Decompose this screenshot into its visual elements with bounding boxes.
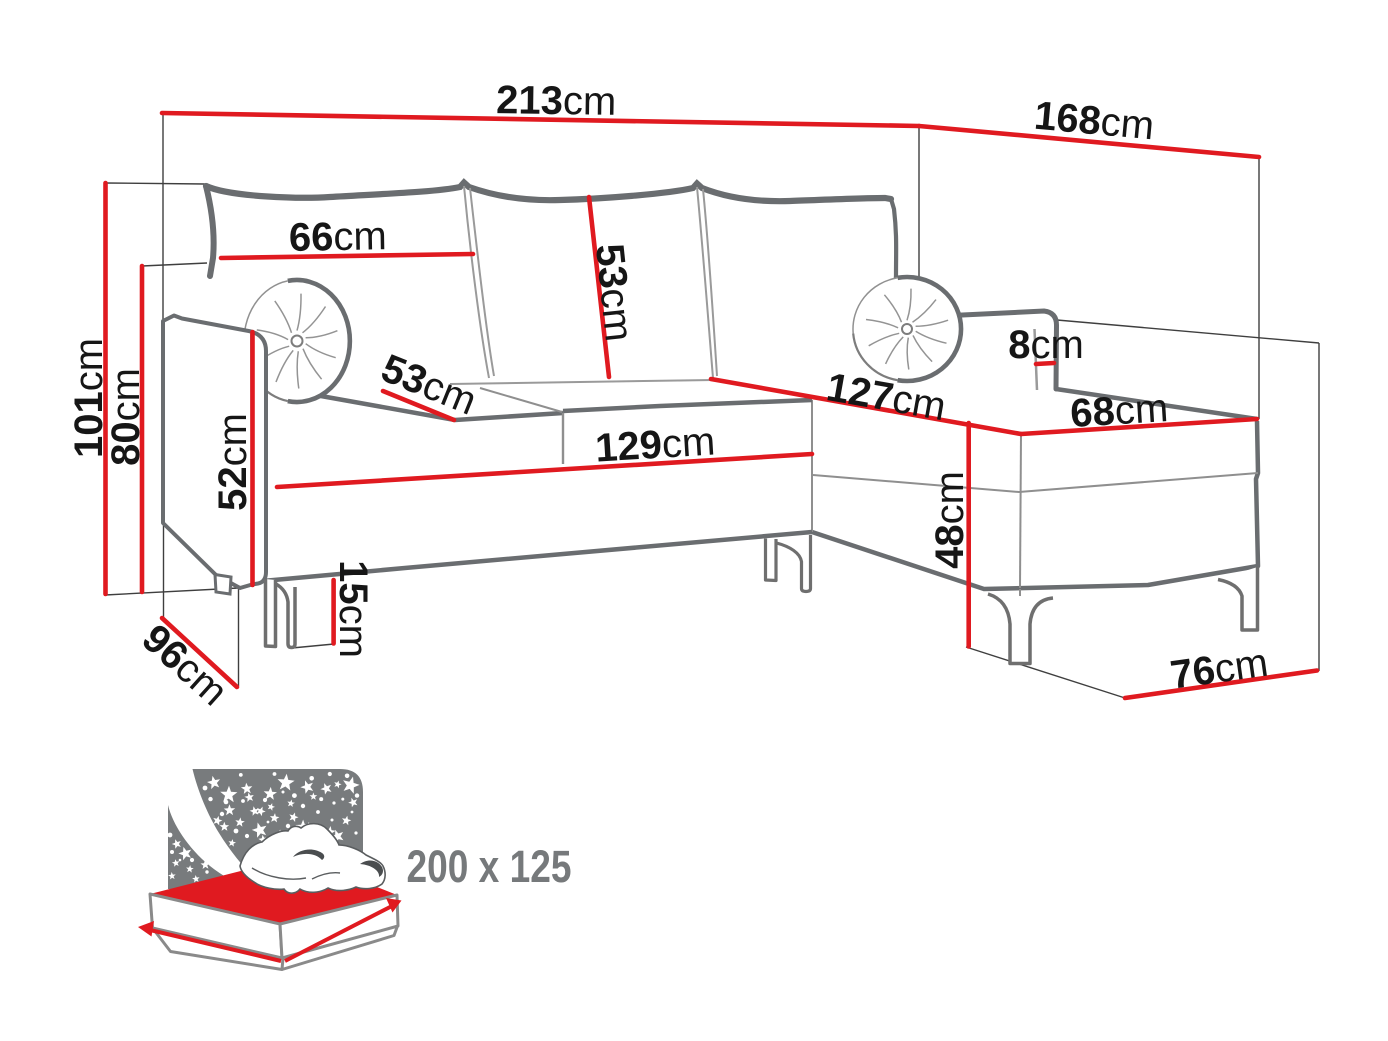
svg-text:48cm: 48cm: [928, 471, 972, 569]
svg-text:52cm: 52cm: [211, 413, 255, 511]
svg-text:68cm: 68cm: [1069, 386, 1169, 436]
svg-text:66cm: 66cm: [288, 214, 387, 260]
svg-text:8cm: 8cm: [1008, 323, 1084, 367]
svg-text:200 x 125: 200 x 125: [407, 841, 572, 892]
svg-text:129cm: 129cm: [594, 419, 717, 470]
svg-text:213cm: 213cm: [496, 78, 617, 124]
svg-text:15cm: 15cm: [331, 560, 375, 658]
svg-text:80cm: 80cm: [104, 368, 148, 466]
